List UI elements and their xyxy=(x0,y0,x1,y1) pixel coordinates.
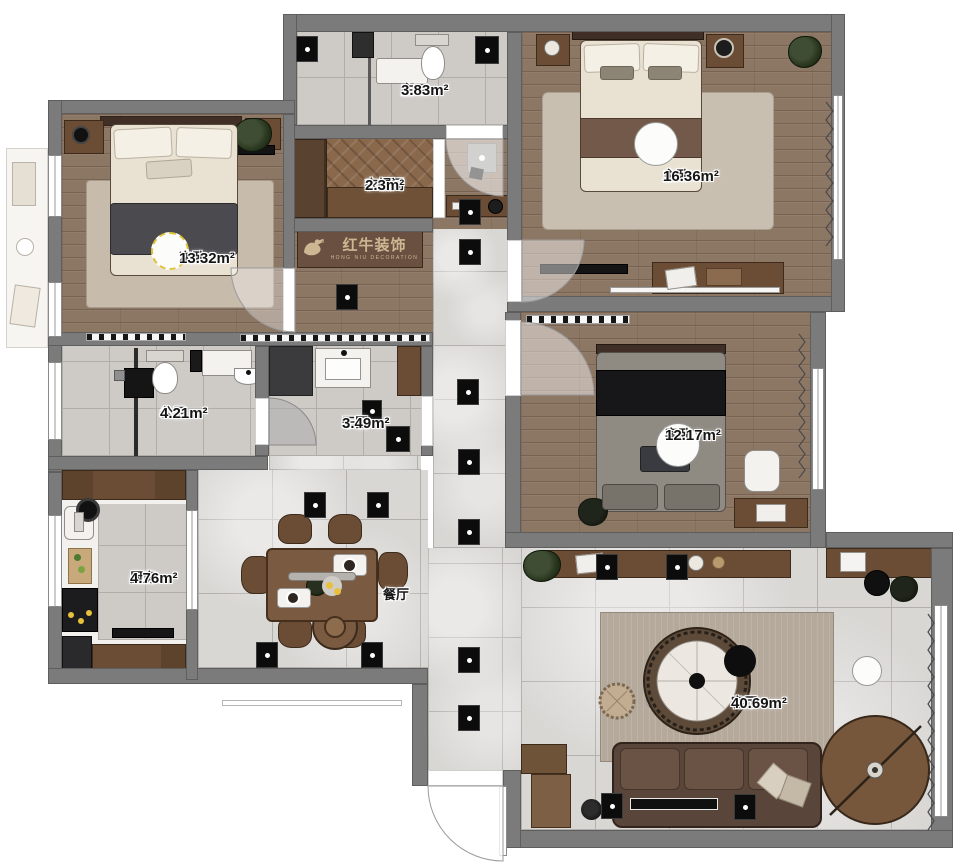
tv-strip xyxy=(630,798,718,810)
magazine-decor xyxy=(665,266,697,290)
spotlight-symbol xyxy=(457,379,479,405)
brand-logo-cabinet: 红牛装饰 HONG NIU DECORATION xyxy=(297,226,423,268)
sofa-cushion xyxy=(620,748,680,790)
storage-cabinet xyxy=(397,346,421,396)
cushion xyxy=(145,158,192,179)
spotlight-symbol xyxy=(601,793,623,819)
stove xyxy=(62,588,98,632)
spotlight-symbol xyxy=(666,554,688,580)
wall-cloakroom-bottom xyxy=(283,218,433,232)
door-opening-secondbed xyxy=(283,268,295,332)
decor-ball xyxy=(581,799,602,820)
footboard-cushion xyxy=(602,484,658,510)
spotlight-symbol xyxy=(361,642,383,668)
shower-control xyxy=(114,370,125,381)
window xyxy=(48,515,62,607)
spotlight-symbol xyxy=(734,794,756,820)
spotlight-symbol xyxy=(459,239,481,265)
brand-text-block: 红牛装饰 HONG NIU DECORATION xyxy=(331,234,419,261)
counter-strip xyxy=(112,628,174,638)
wall-living-bottom xyxy=(503,830,953,848)
closet-rail xyxy=(526,315,630,324)
closet-rail xyxy=(240,334,430,342)
stove-knob xyxy=(68,612,74,618)
room-area: 2.3m² xyxy=(365,175,404,198)
toilet-tank xyxy=(415,34,449,46)
spotlight-symbol xyxy=(367,492,389,518)
room-area: 4.76m² xyxy=(130,568,178,591)
room-area: 4.21m² xyxy=(160,403,208,426)
spotlight-symbol xyxy=(458,705,480,731)
brand-bull-icon xyxy=(302,237,326,257)
wall-living-topright xyxy=(826,532,953,548)
window xyxy=(48,362,62,440)
room-area: 13.32m² xyxy=(179,248,235,271)
spotlight-symbol xyxy=(458,449,480,475)
shower-partition xyxy=(134,348,138,456)
wall-guestbed-bottom xyxy=(505,532,826,548)
stove-knob xyxy=(78,618,84,624)
window xyxy=(812,368,824,490)
spotlight-symbol xyxy=(256,642,278,668)
floor-corridor-mid xyxy=(433,346,505,548)
pillow xyxy=(113,127,172,160)
room-area: 3.83m² xyxy=(401,80,449,103)
bed-blanket xyxy=(596,370,726,416)
laptop-decor xyxy=(840,552,866,572)
door-opening-dryarea xyxy=(421,396,433,446)
dining-chair xyxy=(278,618,312,648)
spotlight-symbol xyxy=(296,36,318,62)
toilet-bowl xyxy=(152,362,178,394)
brand-name: 红牛装饰 xyxy=(342,234,406,255)
shelf-board xyxy=(610,287,780,293)
door-stop-decor xyxy=(469,167,484,180)
tray-decor xyxy=(288,572,356,581)
spotlight-symbol xyxy=(458,519,480,545)
cabinet-decor xyxy=(706,268,742,286)
door-opening-guestbed xyxy=(505,320,521,396)
side-seat xyxy=(646,656,686,710)
wall-masterbed-bottom xyxy=(507,296,845,312)
sliding-door-kitchen xyxy=(186,510,198,610)
vegetable-decor xyxy=(78,566,85,573)
lamp-decor xyxy=(544,40,560,56)
rug xyxy=(600,612,834,762)
lamp-decor xyxy=(714,38,734,58)
pot-decor xyxy=(488,199,503,214)
bath-cabinet xyxy=(352,32,374,58)
closet-rail xyxy=(86,333,186,341)
cushion xyxy=(600,66,634,80)
dining-chair xyxy=(278,514,312,544)
toilet-bowl xyxy=(421,46,445,80)
vinyl-record-decor xyxy=(72,126,90,144)
room-area: 12.17m² xyxy=(665,425,721,448)
balcony-bench xyxy=(12,162,36,206)
door-opening-masterbed xyxy=(507,240,522,302)
entry-cabinet xyxy=(531,774,571,828)
balcony-table xyxy=(16,238,34,256)
upper-cabinets xyxy=(62,470,186,500)
doorway-cloakroom xyxy=(433,139,445,218)
cushion xyxy=(648,66,682,80)
door-opening-publicbath xyxy=(255,398,269,445)
floor-drain xyxy=(124,368,154,398)
spotlight-symbol xyxy=(304,492,326,518)
laundry-cabinet xyxy=(269,346,313,396)
entry-cabinet xyxy=(521,744,567,774)
sink-basin xyxy=(74,512,84,532)
room-area: 16.36m² xyxy=(663,166,719,189)
shower-drain-icon xyxy=(479,155,485,161)
room-area: 3.49m² xyxy=(342,413,390,436)
desk-pad xyxy=(756,504,786,522)
spotlight-symbol xyxy=(336,284,358,310)
brand-subtitle: HONG NIU DECORATION xyxy=(331,255,419,261)
downlight-symbol xyxy=(852,656,882,686)
faucet-icon xyxy=(246,370,251,375)
entry-door-opening xyxy=(428,770,503,786)
bowl-decor xyxy=(342,558,357,573)
bowl-decor xyxy=(688,555,704,571)
bath-cabinet xyxy=(190,350,202,372)
window xyxy=(833,95,843,260)
porch-step-line xyxy=(222,700,402,706)
spotlight-symbol xyxy=(596,554,618,580)
spotlight-symbol xyxy=(458,647,480,673)
wall-publicbath-bottom xyxy=(48,456,268,470)
wall-entry-left xyxy=(412,684,428,786)
dining-chair xyxy=(328,514,362,544)
spotlight-symbol xyxy=(459,199,481,225)
door-arc-entry xyxy=(428,786,503,861)
sofa-cushion xyxy=(684,748,744,790)
kettle-stool-inner xyxy=(324,616,346,638)
bowl-decor xyxy=(286,591,300,605)
window xyxy=(48,282,62,337)
window xyxy=(48,155,62,217)
faucet-icon xyxy=(341,350,347,356)
room-name: 餐厅 xyxy=(383,585,409,605)
appliance xyxy=(62,636,92,670)
stove-knob xyxy=(86,610,92,616)
footboard-cushion xyxy=(664,484,720,510)
tv-strip xyxy=(540,264,628,274)
pillow xyxy=(175,127,232,159)
floor-plan: 红牛装饰 HONG NIU DECORATION xyxy=(0,0,960,864)
wall-secondbed-top xyxy=(48,100,295,114)
wall-secondbed-right xyxy=(283,114,295,268)
entry-door-leaf xyxy=(499,786,507,856)
wall-bottom-left xyxy=(48,668,428,684)
room-area: 40.69m² xyxy=(731,693,787,716)
window xyxy=(934,605,948,817)
desk-chair xyxy=(744,450,780,492)
toilet-tank xyxy=(146,350,184,362)
basin xyxy=(325,358,361,380)
downlight-symbol xyxy=(634,122,678,166)
fruit-decor xyxy=(334,588,341,595)
door-opening-masterbath xyxy=(446,125,503,139)
wall-top xyxy=(283,14,845,32)
fruit-decor xyxy=(326,582,333,589)
balcony-chair xyxy=(9,284,40,327)
desk-chair xyxy=(864,570,890,596)
floor-dry-area-strip xyxy=(269,456,421,470)
spotlight-symbol xyxy=(475,36,499,64)
vegetable-decor xyxy=(74,554,81,561)
bowl-decor xyxy=(712,556,725,569)
